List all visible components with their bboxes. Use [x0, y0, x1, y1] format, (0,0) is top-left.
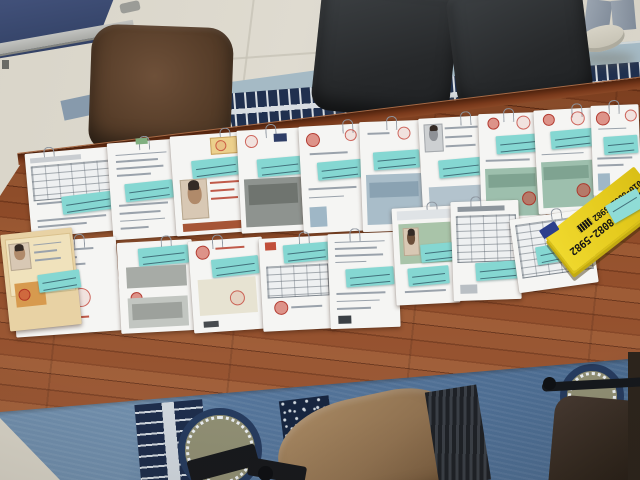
- document-booklet: [0, 228, 82, 332]
- portrait-face: [14, 246, 26, 261]
- handwriting: [350, 277, 390, 286]
- doc-detail: [335, 253, 383, 256]
- id-photo: [8, 242, 31, 271]
- document-linesDoc: [327, 232, 400, 329]
- doc-detail: [198, 276, 258, 317]
- red-stamp: [570, 111, 585, 126]
- paper-clip: [503, 108, 514, 122]
- doc-detail: [116, 158, 158, 163]
- portrait-face: [407, 231, 415, 245]
- document-grayCopy: [117, 239, 197, 334]
- red-stamp: [517, 116, 531, 130]
- sticky-note: [475, 260, 520, 281]
- handwriting: [443, 168, 479, 177]
- paper-clip: [386, 116, 397, 130]
- document-darkCopy: [236, 127, 308, 233]
- id-photo: [424, 123, 444, 153]
- paper-clip: [459, 111, 471, 126]
- doc-detail: [309, 207, 327, 227]
- doc-detail: [204, 321, 219, 328]
- doc-detail: [121, 226, 149, 230]
- id-photo: [180, 178, 210, 220]
- red-stamp: [305, 133, 320, 148]
- doc-detail: [266, 263, 330, 298]
- red-stamp: [245, 135, 259, 149]
- doc-detail: [542, 152, 584, 156]
- doc-detail: [486, 159, 530, 162]
- red-stamp: [196, 245, 211, 260]
- document-formTable: [25, 146, 120, 237]
- handwriting: [500, 144, 537, 152]
- doc-detail: [336, 291, 385, 295]
- doc-detail: [405, 289, 446, 293]
- handwriting: [608, 145, 634, 152]
- doc-detail: [597, 164, 623, 167]
- red-stamp: [487, 118, 499, 130]
- document-formTable2: [450, 200, 521, 301]
- doc-detail: [445, 135, 472, 138]
- doc-detail: [117, 165, 163, 170]
- sticky-note: [283, 241, 331, 263]
- paper-clip: [73, 234, 85, 249]
- document-greenPassport: [533, 107, 599, 214]
- handwriting: [321, 170, 358, 179]
- doc-detail: [598, 127, 626, 130]
- doc-detail: [308, 186, 357, 190]
- doc-detail: [335, 240, 385, 244]
- doc-detail: [488, 173, 536, 188]
- doc-detail: [120, 210, 161, 215]
- doc-detail: [337, 299, 380, 302]
- doc-detail: [310, 151, 348, 155]
- portrait-face: [429, 126, 439, 141]
- sticky-note: [316, 159, 362, 181]
- doc-detail: [544, 165, 590, 180]
- sticky-note: [345, 266, 394, 287]
- doc-detail: [125, 264, 186, 289]
- doc-detail: [119, 201, 168, 206]
- doc-detail: [248, 182, 299, 205]
- doc-detail: [367, 132, 389, 135]
- sticky-note: [438, 157, 483, 179]
- sticky-note: [550, 128, 594, 150]
- doc-detail: [132, 302, 182, 321]
- doc-detail: [337, 307, 371, 310]
- doc-detail: [37, 214, 106, 222]
- doc-detail: [445, 126, 478, 129]
- sticky-note: [407, 265, 449, 286]
- id-photo: [403, 228, 420, 256]
- doc-detail: [339, 315, 352, 324]
- document-formRed: [259, 235, 336, 332]
- red-stamp: [273, 301, 288, 316]
- sticky-note: [211, 255, 260, 278]
- sticky-note: [125, 179, 175, 202]
- doc-detail: [273, 133, 287, 142]
- sticky-note: [256, 156, 302, 178]
- doc-detail: [309, 195, 345, 199]
- doc-detail: [265, 242, 277, 251]
- red-stamp: [624, 109, 636, 121]
- doc-detail: [335, 247, 377, 250]
- doc-detail: [369, 181, 418, 198]
- handwriting: [607, 138, 633, 145]
- doc-detail: [457, 205, 505, 212]
- documents-layer: [0, 0, 640, 480]
- photo-stage: 010-8082-5982 010-8082-5982: [0, 0, 640, 480]
- doc-detail: [397, 209, 451, 221]
- doc-detail: [456, 214, 517, 264]
- doc-detail: [460, 284, 478, 294]
- doc-detail: [335, 260, 366, 263]
- red-stamp: [595, 112, 609, 126]
- handwriting: [412, 276, 445, 285]
- document-stampsDoc2: [188, 237, 268, 334]
- doc-detail: [116, 151, 166, 156]
- doc-detail: [183, 220, 242, 232]
- doc-detail: [210, 188, 234, 191]
- sticky-note: [603, 134, 638, 154]
- doc-detail: [136, 138, 148, 145]
- sticky-note: [191, 156, 241, 179]
- sticky-note: [373, 149, 420, 170]
- doc-detail: [38, 222, 87, 228]
- doc-detail: [597, 157, 633, 160]
- doc-detail: [117, 173, 151, 177]
- handwriting: [425, 252, 455, 260]
- red-stamp: [398, 126, 411, 139]
- doc-detail: [291, 305, 323, 308]
- portrait-face: [187, 183, 202, 205]
- doc-detail: [446, 144, 476, 147]
- doc-detail: [120, 217, 165, 222]
- handwriting: [480, 271, 516, 279]
- paper-clip: [608, 100, 619, 114]
- doc-detail: [210, 196, 237, 200]
- red-stamp: [345, 129, 358, 142]
- doc-detail: [209, 180, 238, 184]
- red-stamp: [542, 114, 555, 127]
